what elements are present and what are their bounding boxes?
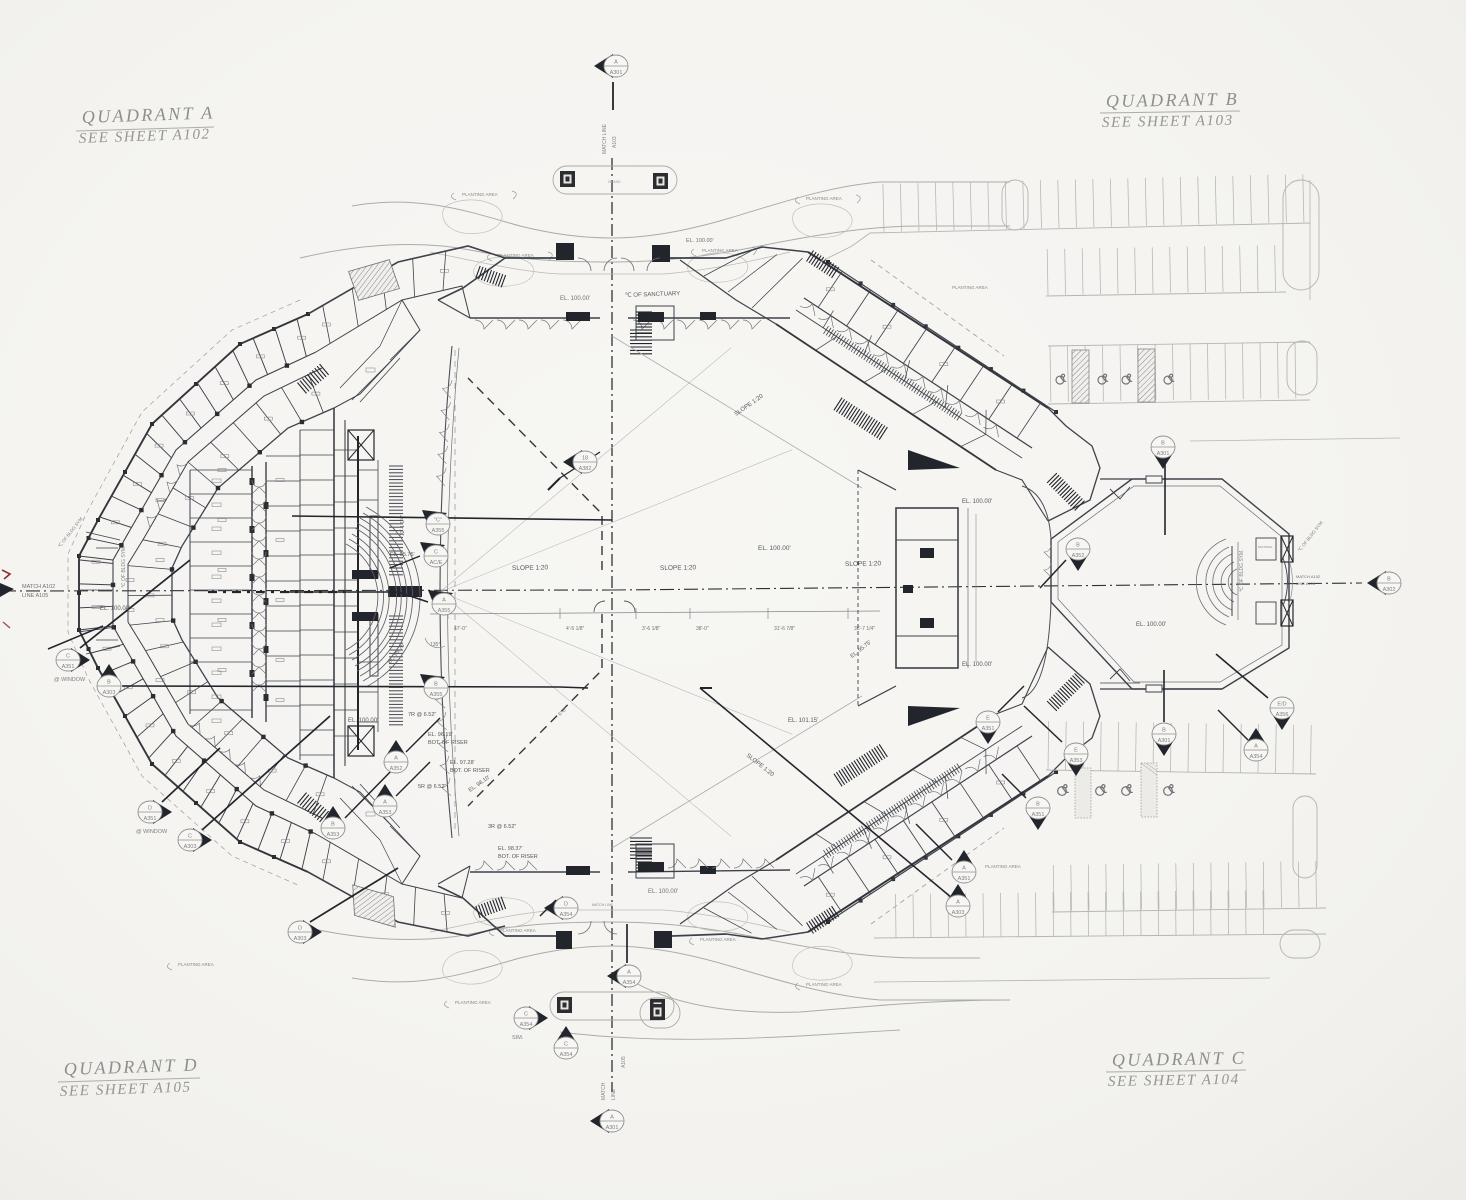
svg-text:PLANTING AREA: PLANTING AREA [952, 285, 988, 290]
svg-text:EL. 100.00': EL. 100.00' [648, 889, 678, 895]
svg-text:"C": "C" [434, 518, 442, 524]
svg-text:SIM.: SIM. [512, 1035, 524, 1041]
svg-text:B: B [1387, 577, 1391, 583]
svg-text:EL. 100.00': EL. 100.00' [100, 606, 130, 612]
svg-text:A: A [614, 60, 618, 66]
svg-text:B: B [107, 680, 111, 686]
svg-text:MATCH A102: MATCH A102 [1296, 574, 1321, 579]
svg-text:5R @ 6.52": 5R @ 6.52" [418, 784, 446, 790]
svg-text:PLANTING AREA: PLANTING AREA [455, 1000, 491, 1005]
svg-text:47'-0": 47'-0" [454, 626, 467, 632]
svg-text:A: A [394, 756, 398, 762]
svg-text:EL. 95.75': EL. 95.75' [390, 552, 415, 558]
svg-text:A: A [383, 800, 387, 806]
svg-text:D: D [148, 806, 152, 812]
svg-text:EL. 97.28': EL. 97.28' [450, 760, 475, 766]
svg-text:ISLAND: ISLAND [608, 180, 621, 184]
svg-text:A353: A353 [379, 810, 392, 816]
svg-text:A301: A301 [610, 70, 623, 76]
svg-text:A: A [956, 900, 960, 906]
svg-text:A355: A355 [438, 608, 451, 614]
svg-text:C: C [66, 654, 70, 660]
svg-text:C: C [564, 1042, 568, 1048]
svg-text:A355: A355 [432, 528, 445, 534]
svg-text:PLANTING AREA: PLANTING AREA [178, 962, 214, 967]
svg-text:PLANTING AREA: PLANTING AREA [985, 864, 1021, 869]
svg-text:7R @ 6.52": 7R @ 6.52" [408, 712, 436, 718]
svg-text:LINE: LINE [611, 1088, 617, 1100]
svg-text:BOT. OF RISER: BOT. OF RISER [450, 768, 490, 774]
svg-text:A353: A353 [327, 832, 340, 838]
svg-text:A352: A352 [390, 766, 403, 772]
svg-text:E: E [1074, 748, 1078, 754]
svg-text:A303: A303 [294, 936, 307, 942]
svg-text:A352: A352 [1072, 553, 1085, 559]
svg-text:A351: A351 [144, 816, 157, 822]
svg-text:B: B [1161, 441, 1165, 447]
svg-text:℃ OF BLDG SYM.: ℃ OF BLDG SYM. [1239, 549, 1245, 592]
svg-text:EL. 100.00': EL. 100.00' [1136, 622, 1166, 628]
svg-text:SEE SHEET A103: SEE SHEET A103 [1102, 113, 1234, 131]
svg-text:SLOPE 1:20: SLOPE 1:20 [845, 560, 882, 568]
svg-text:A: A [442, 598, 446, 604]
svg-text:A351: A351 [982, 726, 995, 732]
svg-text:BOT. OF RISER: BOT. OF RISER [428, 740, 468, 746]
svg-text:MATCH: MATCH [601, 1082, 607, 1100]
svg-text:A354: A354 [1250, 754, 1263, 760]
svg-text:@ WINDOW: @ WINDOW [136, 829, 168, 835]
svg-text:PLANTING AREA: PLANTING AREA [462, 192, 498, 197]
svg-text:EL. 100.00': EL. 100.00' [962, 499, 992, 505]
svg-text:EL. 96.19': EL. 96.19' [428, 732, 453, 738]
svg-text:A351: A351 [958, 876, 971, 882]
svg-text:PLANTING AREA: PLANTING AREA [702, 248, 738, 253]
svg-text:A105: A105 [621, 1056, 627, 1068]
svg-text:A356: A356 [1276, 712, 1289, 718]
svg-text:D: D [564, 902, 568, 908]
svg-text:EL. 101.15': EL. 101.15' [788, 718, 818, 724]
svg-text:B: B [331, 822, 335, 828]
svg-text:36'-7 1/4": 36'-7 1/4" [854, 626, 875, 632]
svg-text:C: C [188, 834, 192, 840]
svg-text:A355: A355 [430, 692, 443, 698]
svg-text:A: A [627, 970, 631, 976]
svg-text:BOT. OF RISER: BOT. OF RISER [498, 854, 538, 860]
svg-text:A354: A354 [560, 1052, 573, 1058]
svg-text:B: B [1076, 543, 1080, 549]
svg-text:EL. 100.00': EL. 100.00' [758, 545, 791, 552]
svg-text:SEE SHEET A104: SEE SHEET A104 [1108, 1072, 1240, 1090]
svg-text:A351: A351 [62, 664, 75, 670]
svg-text:B: B [1036, 802, 1040, 808]
svg-text:4'-5 1/8": 4'-5 1/8" [566, 626, 585, 632]
svg-text:3'-6 1/8": 3'-6 1/8" [642, 626, 661, 632]
svg-text:A354: A354 [520, 1022, 533, 1028]
svg-text:EL. 100.00': EL. 100.00' [348, 718, 378, 724]
svg-text:MATCH LINE: MATCH LINE [602, 123, 608, 154]
svg-text:@ WINDOW: @ WINDOW [54, 677, 86, 683]
svg-text:A302: A302 [1383, 587, 1396, 593]
svg-text:18: 18 [582, 456, 588, 462]
svg-text:A301: A301 [606, 1125, 619, 1131]
svg-text:E/D: E/D [1277, 702, 1286, 708]
svg-text:PLANTING AREA: PLANTING AREA [500, 928, 536, 933]
svg-text:QUADRANT C: QUADRANT C [1112, 1048, 1247, 1070]
svg-text:MATCH A102: MATCH A102 [22, 584, 55, 590]
svg-text:A354: A354 [623, 980, 636, 986]
svg-text:C: C [434, 550, 438, 556]
svg-text:38'-0": 38'-0" [696, 626, 709, 632]
svg-text:A354: A354 [560, 912, 573, 918]
svg-text:B: B [1162, 728, 1166, 734]
svg-text:A: A [1254, 744, 1258, 750]
svg-text:SLOPE 1:20: SLOPE 1:20 [512, 564, 549, 572]
svg-text:B: B [434, 682, 438, 688]
svg-text:E: E [986, 716, 990, 722]
svg-text:A301: A301 [1157, 451, 1170, 457]
svg-text:SLOPE 1:20: SLOPE 1:20 [660, 564, 697, 572]
svg-text:LINE A104: LINE A104 [1296, 581, 1316, 586]
svg-text:EL. 100.00': EL. 100.00' [686, 238, 714, 244]
svg-text:AC/E: AC/E [430, 560, 443, 566]
svg-text:A: A [610, 1115, 614, 1121]
svg-text:PLANTING AREA: PLANTING AREA [806, 982, 842, 987]
svg-text:EL. 100.00': EL. 100.00' [962, 662, 992, 668]
svg-text:A303: A303 [952, 910, 965, 916]
svg-text:A353: A353 [1070, 758, 1083, 764]
svg-text:31'-6 7/8": 31'-6 7/8" [774, 626, 795, 632]
svg-text:A303: A303 [103, 690, 116, 696]
svg-text:A103: A103 [612, 136, 618, 148]
svg-text:QUADRANT B: QUADRANT B [1106, 89, 1240, 111]
svg-text:A303: A303 [184, 844, 197, 850]
svg-text:D: D [298, 926, 302, 932]
svg-text:MATCH LINE: MATCH LINE [592, 903, 614, 907]
svg-text:A301: A301 [1158, 738, 1171, 744]
svg-text:PLANTING AREA: PLANTING AREA [700, 937, 736, 942]
svg-text:EL. 98.37': EL. 98.37' [498, 846, 523, 852]
svg-text:A: A [962, 866, 966, 872]
svg-text:EL. 100.00': EL. 100.00' [560, 296, 590, 302]
svg-text:A382: A382 [579, 466, 592, 472]
svg-text:PLANTING AREA: PLANTING AREA [806, 196, 842, 201]
svg-text:3R @ 6.52": 3R @ 6.52" [488, 824, 516, 830]
svg-text:PASTORAL: PASTORAL [1258, 545, 1273, 549]
svg-text:C: C [524, 1012, 528, 1018]
svg-text:LINE A105: LINE A105 [22, 593, 48, 599]
svg-text:A351: A351 [1032, 812, 1045, 818]
